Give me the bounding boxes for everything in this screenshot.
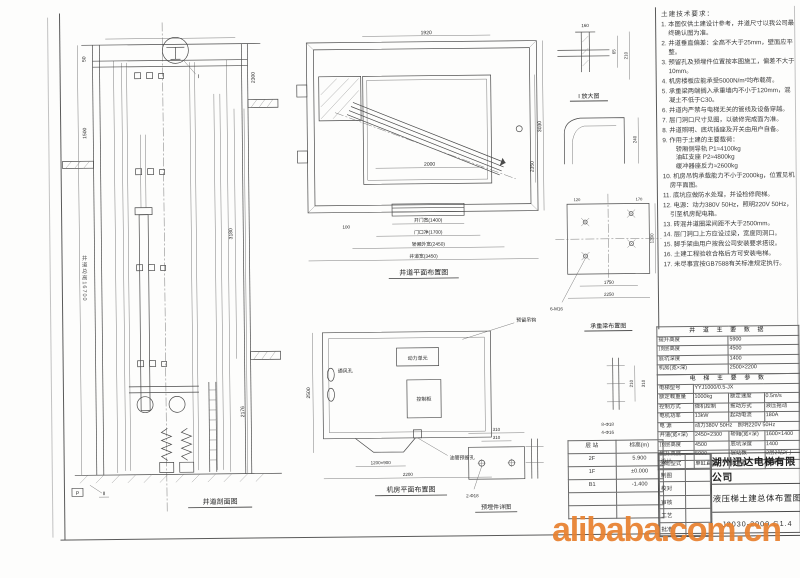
- shaft-plan-caption: 井道平面布置图: [399, 267, 448, 277]
- table-cell: 轿厢(宽×深): [729, 431, 765, 441]
- note-item: 2. 井道垂直偏差：全高不大于25mm，壁面应平整。: [661, 39, 795, 58]
- table-cell: 标高(m): [615, 440, 663, 453]
- table-cell: 2450×2300: [693, 431, 729, 441]
- svg-text:2-Φ18: 2-Φ18: [466, 493, 479, 498]
- technical-notes: 土建技术要求： 1. 本图仅供土建设计参考，井道尺寸以我公司最终确认图为准。2.…: [661, 9, 798, 329]
- pump-unit: 动力单元: [397, 348, 439, 366]
- specification-tables: 井 道 主 要 数 据 提升高度5900顶层高度4500底坑深度1400机房(宽…: [656, 325, 800, 470]
- note-item: 15. 脚手架由用户按我公司安装要求搭设。: [663, 240, 797, 250]
- notes-title: 土建技术要求：: [661, 9, 795, 20]
- elevation-dimensions: 50 1500 2300 3180 2176: [77, 43, 260, 475]
- svg-text:120: 120: [574, 197, 582, 202]
- table-cell: 额定载重量: [657, 393, 693, 403]
- note-item: 3. 预留孔及预埋件位置按本图施工，偏差不大于10mm。: [661, 58, 795, 77]
- table-cell: 液压拖动: [764, 402, 800, 412]
- pit-ladder: [209, 382, 217, 472]
- svg-text:1200: 1200: [649, 233, 654, 244]
- svg-text:井道宽(3450): 井道宽(3450): [409, 253, 438, 260]
- table-cell: -1.400: [616, 479, 664, 492]
- svg-text:P: P: [76, 491, 80, 497]
- table-cell: 额定速度: [728, 393, 764, 403]
- svg-text:轿厢外宽(2450): 轿厢外宽(2450): [412, 241, 446, 248]
- svg-text:动力单元: 动力单元: [408, 355, 428, 362]
- bolt-strip-detail: 210 310 8-Φ18 4-Φ16: [601, 357, 647, 434]
- hydraulic-cylinder: [134, 135, 154, 411]
- svg-text:310: 310: [493, 435, 501, 440]
- machine-room-caption: 机房平面布置图: [386, 485, 435, 495]
- table-cell: 1F: [568, 466, 616, 479]
- svg-text:1200×900: 1200×900: [371, 460, 392, 465]
- callout-label: I: [198, 74, 200, 80]
- table-cell: 电机功率: [658, 412, 694, 422]
- note-item: 8. 井道照明、底坑插座及开关由用户自备。: [662, 126, 796, 136]
- control-cabinet: 控制柜: [407, 380, 441, 418]
- svg-text:3030: 3030: [537, 121, 543, 132]
- table-cell: 校对: [659, 482, 685, 496]
- svg-text:2300: 2300: [251, 72, 257, 83]
- note-item: 5. 承重梁两端搁入承重墙内不小于120mm，混凝土不低于C30。: [662, 87, 796, 106]
- svg-text:210: 210: [623, 51, 628, 59]
- machine-beam: [297, 76, 362, 163]
- note-item: 12. 电源：动力380V 50Hz，照明220V 50Hz，引至机房配电箱。: [663, 201, 797, 220]
- bracket-detail-i: 160 65 210 I 放大图: [557, 23, 630, 102]
- table-cell: 拖动方式: [729, 402, 765, 412]
- plan-dimensions: 1920 3030 2350 2000 100 开门宽(1400) 门口净(17…: [306, 29, 544, 261]
- svg-text:2000: 2000: [424, 162, 435, 168]
- table-cell: 制图: [659, 468, 685, 482]
- fitting: [516, 126, 522, 132]
- table-cell: 1400: [764, 440, 800, 450]
- svg-text:3180: 3180: [228, 228, 234, 239]
- note-item: 10. 机房吊钩承载能力不小于2000kg，位置见机房平面图。: [663, 172, 797, 191]
- table-cell: 底坑深度: [729, 440, 765, 450]
- svg-text:6-M16: 6-M16: [550, 306, 563, 311]
- notes-list: 1. 本图仅供土建设计参考，井道尺寸以我公司最终确认图为准。2. 井道垂直偏差：…: [661, 20, 798, 270]
- note-item: 7. 层门洞口尺寸见图，以装修完成面为准。: [662, 116, 796, 126]
- table-cell: 层 站: [568, 440, 616, 453]
- note-item: 16. 土建工程验收合格后方可安装电梯。: [664, 250, 798, 260]
- piston-diagonal: [335, 101, 516, 181]
- table-cell: 4500: [693, 441, 729, 451]
- table-cell: [685, 454, 711, 468]
- shaft-plan-walls: [306, 41, 538, 213]
- detail-views-column: 160 65 210 I 放大图 240: [543, 11, 668, 342]
- buffer-spring: [181, 428, 191, 460]
- svg-text:II: II: [103, 491, 106, 497]
- alibaba-watermark: alibaba.com.cn: [552, 511, 781, 550]
- table-cell: 180A: [764, 411, 800, 421]
- table-cell: 0.5m/s: [764, 392, 800, 402]
- note-item: 1. 本图仅供土建设计参考，井道尺寸以我公司最终确认图为准。: [661, 20, 795, 39]
- note-item: 17. 未尽事宜按GB7588有关标准规定执行。: [664, 260, 798, 270]
- table-cell: 13kW: [693, 412, 729, 422]
- svg-text:1750: 1750: [604, 280, 615, 285]
- table-cell: 微机控制: [693, 403, 729, 413]
- table-cell: [616, 492, 664, 505]
- svg-text:1920: 1920: [421, 30, 432, 36]
- table-cell: [569, 492, 617, 505]
- svg-text:开门宽(1400): 开门宽(1400): [414, 217, 443, 224]
- svg-text:控制柜: 控制柜: [416, 396, 431, 403]
- table-cell: [685, 481, 711, 495]
- company-name: 湖州迅达电梯有限公司: [712, 453, 800, 485]
- drawing-sheet: 井道总高16700: [0, 0, 800, 578]
- svg-text:1500: 1500: [82, 127, 88, 138]
- elevation-caption: 井道剖面图: [203, 497, 238, 506]
- floor-slabs: [62, 99, 281, 361]
- drawing-title: 液压梯土建总体布置图: [712, 484, 800, 513]
- table-cell: 1600×1400: [764, 430, 800, 440]
- beam-layout-detail: 1750 2250 120 170 1200 6-M16 承重梁布置图: [549, 193, 662, 331]
- svg-text:承重梁布置图: 承重梁布置图: [590, 322, 626, 330]
- svg-text:2250: 2250: [604, 292, 615, 297]
- section-markers: P II: [72, 485, 109, 497]
- table-cell: 2F: [568, 453, 616, 466]
- svg-text:65: 65: [611, 49, 616, 55]
- vent-holes: 通风孔: [327, 367, 353, 401]
- note-item: 9. 作用于土建的主要载荷： 轿厢侧导轨 P1≈4100kg 油缸支座 P2≈4…: [662, 135, 796, 172]
- hook-detail-callout: I: [162, 37, 199, 80]
- svg-text:门口净(1700): 门口净(1700): [414, 229, 443, 236]
- svg-text:2350: 2350: [530, 161, 536, 172]
- hook-annotation: 预留吊钩: [462, 317, 536, 340]
- svg-text:4-Φ16: 4-Φ16: [601, 430, 614, 435]
- bolt-strip-detail-2: [525, 439, 543, 479]
- table-cell: 1000kg: [693, 393, 729, 403]
- svg-text:310: 310: [493, 427, 501, 432]
- note-item: 4. 机房楼板应能承受5000N/m²均布载荷。: [662, 77, 796, 87]
- scanned-drawing-page: 井道总高16700: [0, 0, 800, 578]
- svg-text:170: 170: [636, 196, 644, 201]
- note-item: 6. 井道内严禁与电梯无关的管线及设备穿越。: [662, 106, 796, 116]
- shaft-elevation-view: I: [55, 13, 295, 530]
- table-cell: B1: [568, 479, 616, 492]
- svg-text:240: 240: [632, 135, 637, 143]
- table-cell: 5.900: [616, 453, 664, 466]
- table-cell: 起动电流: [729, 412, 765, 422]
- shaft-plan-view: 1920 3030 2350 2000 100 开门宽(1400) 门口净(17…: [290, 26, 555, 291]
- table-cell: 审核: [660, 495, 686, 509]
- note-item: 13. 砖混井道圈梁间距不大于2500mm。: [663, 220, 797, 230]
- svg-text:8-Φ18: 8-Φ18: [601, 422, 614, 427]
- svg-text:310: 310: [641, 379, 646, 387]
- svg-text:预埋件详图: 预埋件详图: [481, 503, 511, 511]
- svg-text:预留吊钩: 预留吊钩: [516, 317, 536, 324]
- shaft-data-table: 井 道 主 要 数 据 提升高度5900顶层高度4500底坑深度1400机房(宽…: [656, 325, 800, 375]
- table-cell: 电梯型号: [657, 384, 693, 394]
- svg-text:2200: 2200: [403, 472, 414, 477]
- svg-text:50: 50: [81, 56, 87, 62]
- svg-text:I 放大图: I 放大图: [578, 92, 599, 100]
- table-cell: 电 源: [658, 422, 694, 432]
- note-item: 14. 层门洞口上方应设过梁，宽度同洞口。: [663, 230, 797, 240]
- svg-text:100: 100: [342, 225, 350, 230]
- table-cell: ±0.000: [616, 466, 664, 479]
- svg-text:160: 160: [581, 23, 589, 28]
- paper-edge-left: [47, 18, 53, 538]
- svg-text:2500: 2500: [306, 387, 312, 398]
- safety-gear: [169, 396, 185, 412]
- embed-plate-detail: 310 310 2-Φ18 预埋件详图: [465, 427, 525, 513]
- hook-profile-detail: 240: [564, 117, 638, 164]
- table-cell: 设计: [659, 455, 685, 469]
- table-cell: [685, 468, 711, 482]
- table-cell: 控制方式: [658, 403, 694, 413]
- floor-levels-table: 层 站标高(m)2F5.9001F±0.000B1-1.400: [567, 439, 664, 519]
- svg-text:210: 210: [629, 379, 634, 387]
- note-item: 11. 底坑应做防水处理，并设检修爬梯。: [663, 191, 797, 201]
- svg-text:通风孔: 通风孔: [338, 367, 353, 374]
- table-cell: [685, 495, 711, 509]
- svg-text:2176: 2176: [240, 406, 246, 417]
